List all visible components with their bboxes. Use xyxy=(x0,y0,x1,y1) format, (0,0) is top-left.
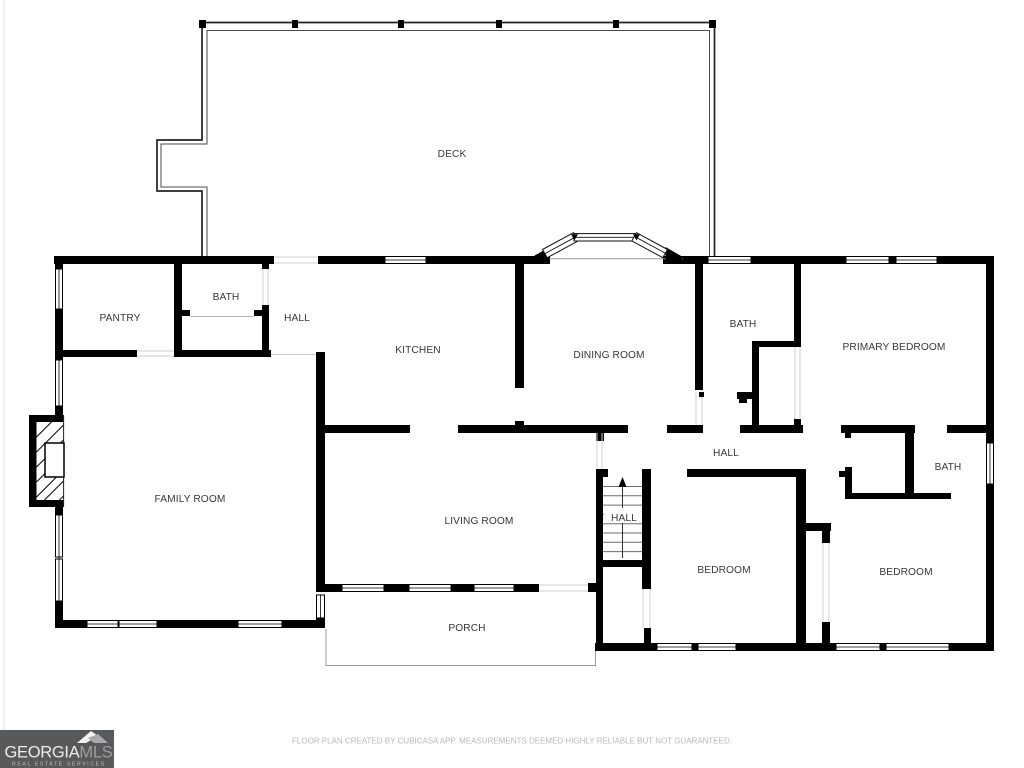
svg-text:GEORGIAMLS: GEORGIAMLS xyxy=(5,744,113,762)
svg-text:DINING ROOM: DINING ROOM xyxy=(573,350,644,361)
svg-text:REAL ESTATE SERVICES: REAL ESTATE SERVICES xyxy=(12,762,106,768)
svg-text:HALL: HALL xyxy=(713,448,739,459)
svg-text:BEDROOM: BEDROOM xyxy=(697,565,750,576)
svg-text:BATH: BATH xyxy=(213,292,240,303)
svg-text:HALL: HALL xyxy=(284,313,310,324)
svg-text:LIVING ROOM: LIVING ROOM xyxy=(444,516,513,527)
svg-text:BEDROOM: BEDROOM xyxy=(879,567,932,578)
svg-text:FAMILY ROOM: FAMILY ROOM xyxy=(155,494,226,505)
svg-text:BATH: BATH xyxy=(730,319,757,330)
svg-text:PRIMARY BEDROOM: PRIMARY BEDROOM xyxy=(842,342,945,353)
svg-text:PORCH: PORCH xyxy=(448,623,485,634)
svg-text:HALL: HALL xyxy=(611,513,637,524)
svg-text:DECK: DECK xyxy=(438,149,467,160)
svg-text:PANTRY: PANTRY xyxy=(100,313,141,324)
svg-text:FLOOR PLAN CREATED BY CUBICASA: FLOOR PLAN CREATED BY CUBICASA APP. MEAS… xyxy=(292,737,732,746)
svg-text:BATH: BATH xyxy=(935,462,962,473)
svg-text:KITCHEN: KITCHEN xyxy=(395,345,440,356)
